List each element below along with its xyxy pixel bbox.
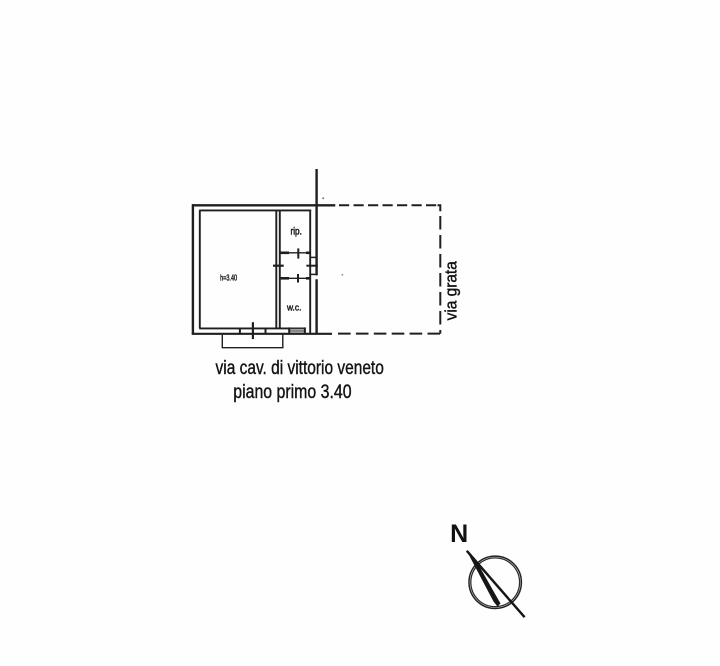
svg-text:piano primo 3.40: piano primo 3.40: [233, 382, 351, 403]
svg-text:N: N: [450, 520, 468, 548]
svg-text:rip.: rip.: [290, 227, 302, 238]
svg-text:via cav. di vittorio veneto: via cav. di vittorio veneto: [216, 358, 384, 379]
svg-text:h=3.40: h=3.40: [220, 273, 237, 282]
svg-text:via grata: via grata: [443, 260, 461, 320]
svg-text:w.c.: w.c.: [286, 303, 301, 314]
